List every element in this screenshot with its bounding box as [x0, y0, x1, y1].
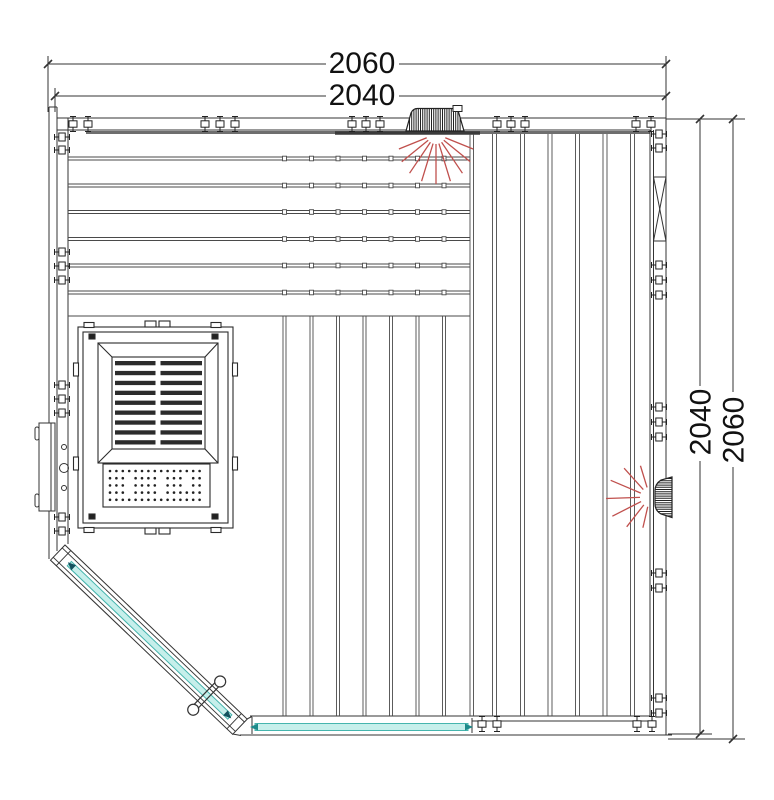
- perforation-dot: [147, 491, 150, 494]
- perforation-dot: [154, 470, 157, 473]
- perforation-dot: [166, 499, 169, 502]
- bench-joint-mark: [363, 290, 367, 295]
- perforation-dot: [198, 477, 201, 480]
- bench-joint-mark: [310, 183, 314, 188]
- bench-slats: [68, 156, 470, 295]
- perforation-dot: [192, 470, 195, 473]
- vent-notch: [453, 106, 462, 112]
- bench-joint-mark: [363, 156, 367, 161]
- dim-label-top-overall: 2060: [329, 47, 396, 80]
- perforation-dot: [141, 484, 144, 487]
- perforation-dot: [173, 484, 176, 487]
- wall-clip: [632, 121, 640, 127]
- bench-joint-mark: [310, 290, 314, 295]
- bench-joint-mark: [283, 210, 287, 215]
- wall-clip: [216, 121, 224, 127]
- wall-clip: [656, 403, 662, 411]
- bench-joint-mark: [389, 183, 393, 188]
- wall-clip: [656, 276, 662, 284]
- glass-door-diagonal: [40, 535, 257, 745]
- perforation-dot: [154, 477, 157, 480]
- grille-slat: [115, 440, 156, 444]
- perforation-dot: [122, 491, 125, 494]
- light-rays-right: [606, 466, 648, 528]
- perforation-dot: [198, 484, 201, 487]
- perforation-dot: [179, 491, 182, 494]
- bench-joint-mark: [310, 263, 314, 268]
- bench-joint-mark: [389, 237, 393, 242]
- perforation-dot: [147, 484, 150, 487]
- perforation-dot: [186, 499, 189, 502]
- bench-joint-mark: [310, 237, 314, 242]
- wall-clip: [59, 381, 65, 389]
- bench-joint-mark: [389, 156, 393, 161]
- dim-label-right-overall: 2060: [718, 397, 751, 464]
- bench-joint-mark: [310, 210, 314, 215]
- floor-boards-right: [493, 134, 635, 716]
- bench-joint-mark: [336, 237, 340, 242]
- perforation-dot: [147, 470, 150, 473]
- bench-joint-mark: [442, 237, 446, 242]
- wall-clip: [376, 121, 384, 127]
- wall-light-icon: [655, 477, 672, 518]
- light-ray: [640, 466, 647, 488]
- perforation-dot: [128, 499, 131, 502]
- light-rays-top: [399, 138, 473, 184]
- perforation-dot: [141, 499, 144, 502]
- grille-slat: [161, 440, 203, 444]
- perforation-dot: [115, 477, 118, 480]
- grille-slat: [161, 420, 203, 424]
- wall-clip: [59, 146, 65, 154]
- dim-label-right-panel: 2040: [685, 389, 718, 456]
- grille-slat: [161, 430, 203, 434]
- perforation-dot: [122, 499, 125, 502]
- bench-joint-mark: [283, 290, 287, 295]
- light-ray: [422, 144, 433, 182]
- wall-clip: [348, 121, 356, 127]
- perforation-dot: [173, 470, 176, 473]
- perforation-dot: [166, 470, 169, 473]
- bench-joint-mark: [336, 183, 340, 188]
- grille-slat: [115, 361, 156, 365]
- perforation-dot: [173, 491, 176, 494]
- light-ray: [439, 144, 450, 182]
- bench-joint-mark: [336, 263, 340, 268]
- sauna-floor-plan-drawing: 2060 2040 2040 2060: [0, 0, 774, 800]
- bench-joint-mark: [416, 263, 420, 268]
- perforation-dot: [192, 491, 195, 494]
- heater-grille-slats: [115, 361, 202, 445]
- wall-clip: [633, 721, 641, 727]
- bench-joint-mark: [416, 210, 420, 215]
- glass-arrow-left: [250, 724, 258, 731]
- bench-joint-mark: [336, 156, 340, 161]
- perforation-dot: [179, 484, 182, 487]
- wall-clip: [59, 395, 65, 403]
- floor-boards-center: [283, 316, 446, 716]
- perforation-dot: [192, 484, 195, 487]
- wall-clip: [656, 261, 662, 269]
- bench-joint-mark: [389, 263, 393, 268]
- perforation-dot: [186, 470, 189, 473]
- perforation-dot: [128, 470, 131, 473]
- grille-slat: [115, 381, 156, 385]
- grille-slat: [115, 401, 156, 405]
- wall-clip: [478, 721, 486, 727]
- wall-clip: [656, 418, 662, 426]
- panel-divider: [470, 134, 474, 716]
- grille-slat: [161, 371, 203, 375]
- bench-joint-mark: [442, 290, 446, 295]
- wall-clip: [656, 709, 662, 717]
- wall-clip: [493, 121, 501, 127]
- perforation-dot: [134, 477, 137, 480]
- wall-clip: [362, 121, 370, 127]
- wall-clip: [656, 291, 662, 299]
- perforation-dot: [134, 491, 137, 494]
- wall-clip: [656, 569, 662, 577]
- control-panel: [35, 423, 55, 511]
- door-hinges: [60, 445, 69, 491]
- perforation-dot: [147, 499, 150, 502]
- wall-clip: [59, 513, 65, 521]
- wall-clip: [201, 121, 209, 127]
- grille-slat: [161, 411, 203, 415]
- grille-slat: [115, 411, 156, 415]
- grille-slat: [161, 401, 203, 405]
- perforation-dot: [141, 477, 144, 480]
- wall-clip: [656, 130, 662, 138]
- perforation-dot: [115, 491, 118, 494]
- bench-joint-mark: [363, 183, 367, 188]
- door-glass-pane: [67, 561, 232, 719]
- perforation-dot: [166, 484, 169, 487]
- wall-clip: [59, 262, 65, 270]
- light-ray: [624, 468, 643, 489]
- grille-slat: [161, 381, 203, 385]
- bench-joint-mark: [283, 183, 287, 188]
- bench-joint-mark: [283, 156, 287, 161]
- light-ray: [445, 138, 473, 149]
- perforation-dot: [141, 491, 144, 494]
- light-ray: [399, 138, 427, 149]
- door-knob-inside: [212, 674, 228, 690]
- perforation-dot: [179, 477, 182, 480]
- heater-corner-screw: [212, 334, 218, 339]
- heater-corner-screw: [212, 514, 218, 519]
- grille-slat: [115, 391, 156, 395]
- bench-joint-mark: [389, 210, 393, 215]
- perforation-dot: [115, 484, 118, 487]
- bottom-glass-panel: [250, 724, 473, 731]
- bench-joint-mark: [283, 237, 287, 242]
- wall-clip: [59, 133, 65, 141]
- perforation-dot: [134, 484, 137, 487]
- bench-joint-mark: [416, 290, 420, 295]
- grille-slat: [115, 430, 156, 434]
- grille-slat: [115, 420, 156, 424]
- perforation-dot: [198, 470, 201, 473]
- grille-slat: [161, 361, 203, 365]
- perforation-dot: [122, 477, 125, 480]
- wall-clip: [59, 409, 65, 417]
- wall-clip: [231, 121, 239, 127]
- bench-joint-mark: [363, 237, 367, 242]
- wall-clip: [656, 433, 662, 441]
- bench-joint-mark: [363, 263, 367, 268]
- perforation-dot: [173, 499, 176, 502]
- perforation-dot: [134, 499, 137, 502]
- perforation-dot: [166, 491, 169, 494]
- perforation-dot: [109, 477, 112, 480]
- wall-clip: [69, 121, 77, 127]
- bench-joint-mark: [310, 156, 314, 161]
- wall-clip: [493, 721, 501, 727]
- bench-joint-mark: [336, 290, 340, 295]
- wall-clip: [656, 144, 662, 152]
- wall-clip: [507, 121, 515, 127]
- bench-joint-mark: [416, 183, 420, 188]
- wall-clip: [59, 527, 65, 535]
- bench-joint-mark: [283, 263, 287, 268]
- perforation-dot: [179, 499, 182, 502]
- perforation-dot: [134, 470, 137, 473]
- perforation-dot: [115, 499, 118, 502]
- perforation-dot: [173, 477, 176, 480]
- floor-plan-svg: 2060 2040 2040 2060: [0, 0, 774, 800]
- perforation-dot: [109, 499, 112, 502]
- bench-joint-mark: [442, 210, 446, 215]
- heater-perforation-dots: [109, 470, 201, 501]
- perforation-dot: [198, 499, 201, 502]
- wall-clip: [656, 694, 662, 702]
- heater-corner-screw: [89, 514, 95, 519]
- bench-joint-mark: [363, 210, 367, 215]
- perforation-dot: [109, 484, 112, 487]
- wall-clip: [648, 721, 656, 727]
- wall-clip: [521, 121, 529, 127]
- wall-clip: [656, 584, 662, 592]
- x-brace: [654, 177, 667, 241]
- bench-joint-mark: [389, 290, 393, 295]
- light-ray: [643, 507, 648, 528]
- perforation-dot: [109, 491, 112, 494]
- bench-joint-mark: [442, 263, 446, 268]
- perforation-dot: [141, 470, 144, 473]
- perforation-dot: [154, 491, 157, 494]
- ceiling-vent-icon: [406, 106, 464, 133]
- perforation-dot: [154, 484, 157, 487]
- grille-slat: [161, 391, 203, 395]
- perforation-dot: [147, 477, 150, 480]
- wall-clip: [84, 121, 92, 127]
- bench-joint-mark: [442, 183, 446, 188]
- perforation-dot: [186, 491, 189, 494]
- perforation-dot: [154, 499, 157, 502]
- perforation-dot: [198, 491, 201, 494]
- perforation-dot: [192, 477, 195, 480]
- perforation-dot: [160, 470, 163, 473]
- perforation-dot: [122, 470, 125, 473]
- wall-clip: [59, 276, 65, 284]
- perforation-dot: [166, 477, 169, 480]
- wall-clip: [647, 121, 655, 127]
- dim-label-top-panel: 2040: [329, 79, 396, 112]
- perforation-dot: [122, 484, 125, 487]
- perforation-dot: [160, 499, 163, 502]
- perforation-dot: [179, 470, 182, 473]
- perforation-dot: [115, 470, 118, 473]
- perforation-dot: [192, 499, 195, 502]
- door-knob-outside: [185, 702, 201, 718]
- wall-clip: [59, 248, 65, 256]
- grille-slat: [115, 371, 156, 375]
- bench-joint-mark: [416, 237, 420, 242]
- bench-joint-mark: [336, 210, 340, 215]
- perforation-dot: [109, 470, 112, 473]
- heater-corner-screw: [89, 334, 95, 339]
